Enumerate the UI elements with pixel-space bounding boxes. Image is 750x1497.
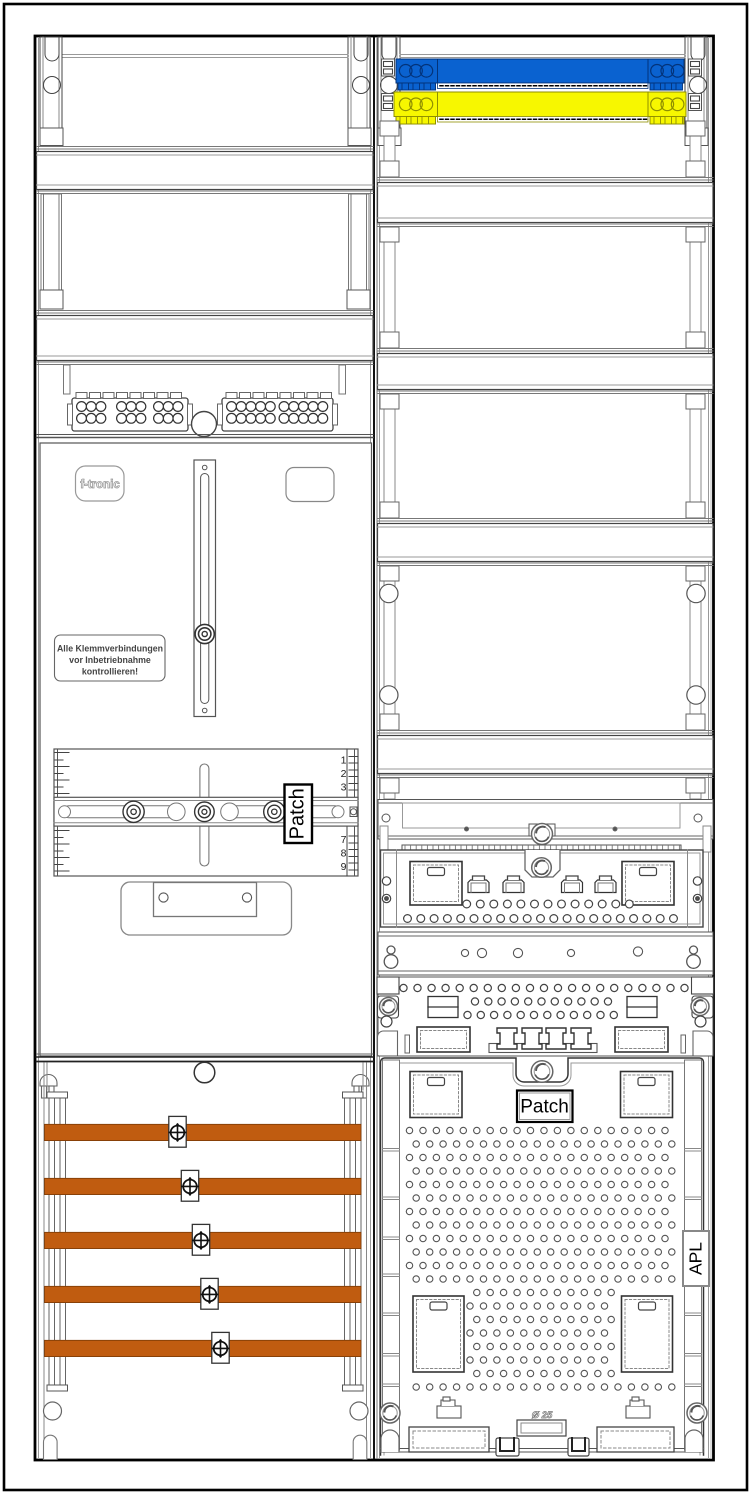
svg-text:vor Inbetriebnahme: vor Inbetriebnahme xyxy=(69,655,151,665)
svg-text:kontrollieren!: kontrollieren! xyxy=(82,667,138,677)
svg-text:Ø 25: Ø 25 xyxy=(532,1410,553,1421)
svg-text:1: 1 xyxy=(341,755,347,767)
svg-text:Patch: Patch xyxy=(520,1097,569,1118)
svg-text:APL: APL xyxy=(686,1242,706,1275)
svg-text:Alle Klemmverbindungen: Alle Klemmverbindungen xyxy=(57,644,163,654)
svg-text:2: 2 xyxy=(341,768,347,780)
svg-text:9: 9 xyxy=(341,861,347,873)
svg-text:3: 3 xyxy=(341,782,347,794)
svg-text:f-tronic: f-tronic xyxy=(80,479,120,491)
svg-text:8: 8 xyxy=(341,848,347,860)
svg-text:Patch: Patch xyxy=(287,788,309,839)
svg-text:7: 7 xyxy=(341,834,347,846)
